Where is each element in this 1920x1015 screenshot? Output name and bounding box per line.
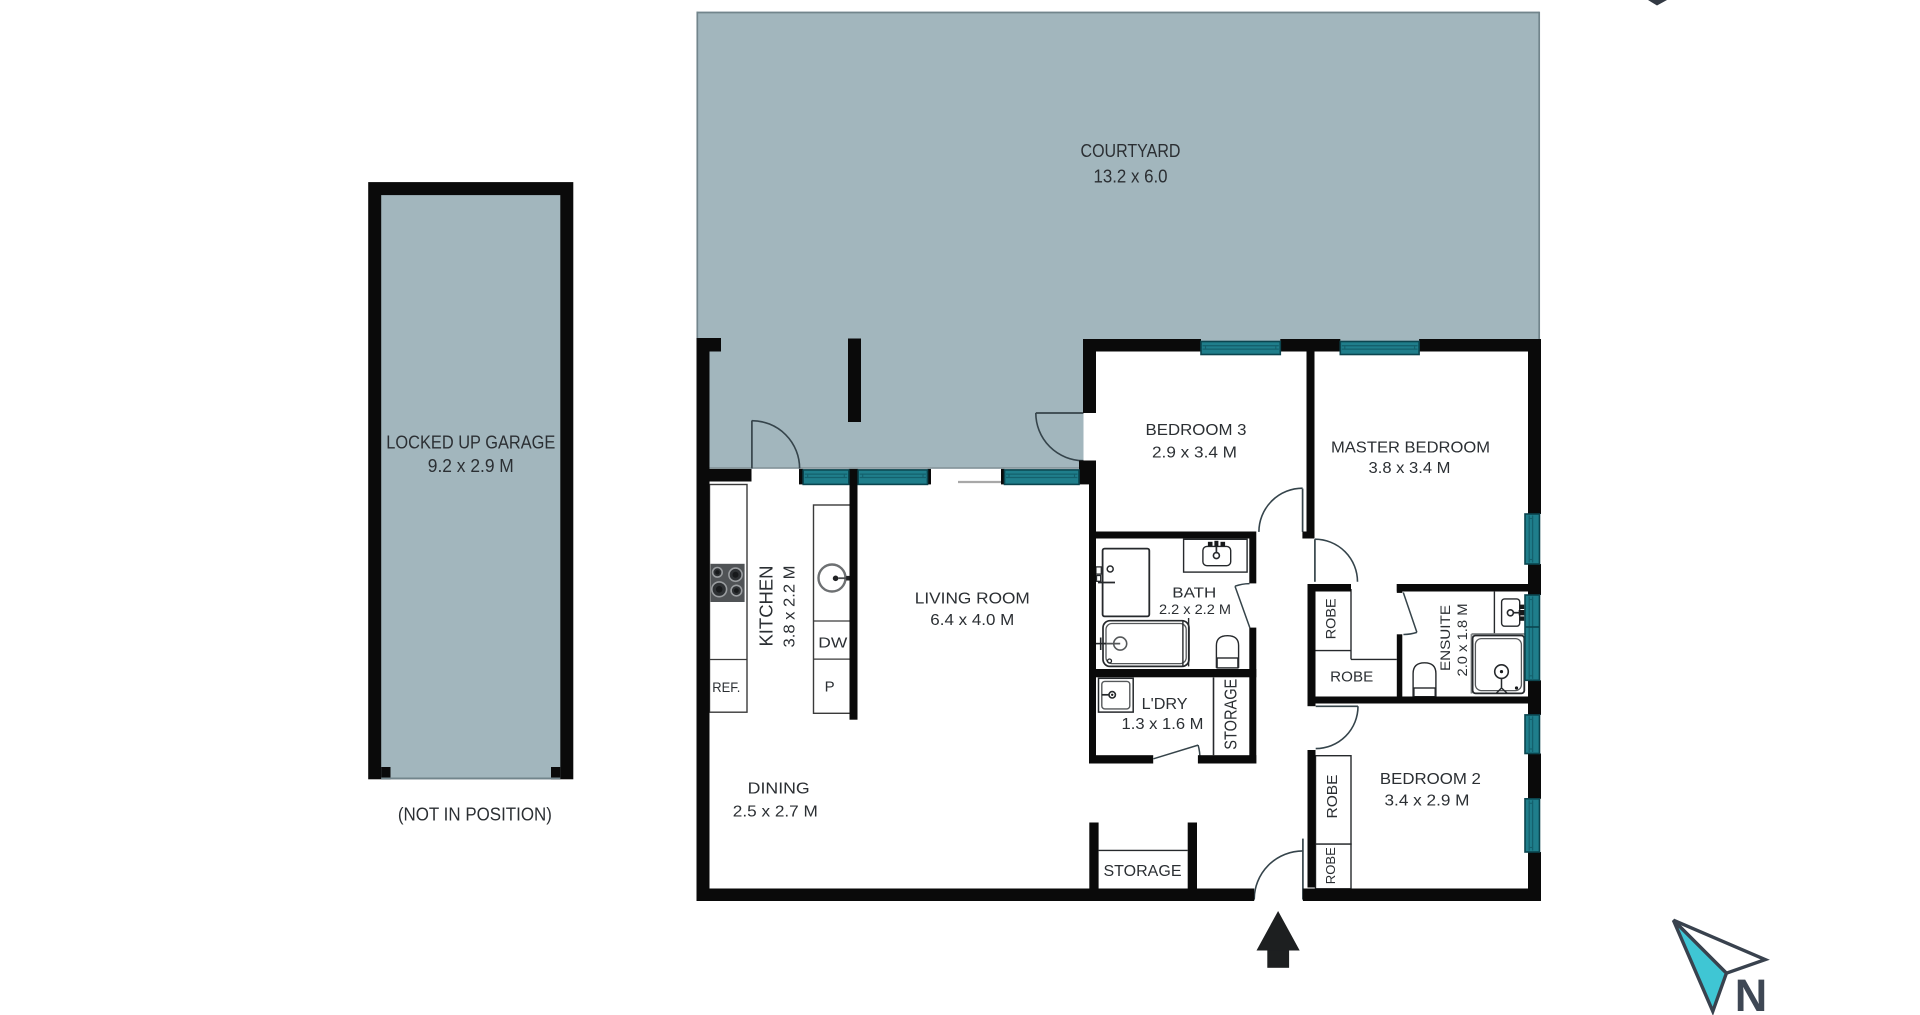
svg-text:L'DRY: L'DRY xyxy=(1142,696,1188,713)
svg-text:BEDROOM 2: BEDROOM 2 xyxy=(1380,771,1481,788)
svg-text:STORAGE: STORAGE xyxy=(1221,679,1241,750)
svg-text:LOCKED UP GARAGE: LOCKED UP GARAGE xyxy=(386,433,555,453)
svg-text:1.3 x 1.6 M: 1.3 x 1.6 M xyxy=(1122,716,1204,733)
svg-text:MASTER BEDROOM: MASTER BEDROOM xyxy=(1331,440,1490,457)
svg-text:N: N xyxy=(1735,970,1768,1015)
svg-text:3.8 x 3.4 M: 3.8 x 3.4 M xyxy=(1369,460,1451,477)
svg-text:DINING: DINING xyxy=(748,780,810,797)
svg-text:ROBE: ROBE xyxy=(1325,774,1341,818)
svg-text:ROBE: ROBE xyxy=(1330,669,1373,685)
svg-text:ROBE: ROBE xyxy=(1324,847,1338,884)
svg-text:LIVING ROOM: LIVING ROOM xyxy=(915,591,1030,608)
svg-text:STORAGE: STORAGE xyxy=(1104,863,1182,880)
svg-text:3.4 x 2.9 M: 3.4 x 2.9 M xyxy=(1385,793,1470,810)
svg-text:2.5 x 2.7 M: 2.5 x 2.7 M xyxy=(733,803,818,820)
svg-text:P: P xyxy=(825,678,835,695)
svg-text:2.2 x 2.2 M: 2.2 x 2.2 M xyxy=(1159,601,1231,617)
svg-text:2.9 x 3.4 M: 2.9 x 3.4 M xyxy=(1152,445,1237,462)
svg-text:3.8 x 2.2 M: 3.8 x 2.2 M xyxy=(781,566,798,648)
svg-text:9.2 x 2.9 M: 9.2 x 2.9 M xyxy=(428,456,514,476)
svg-text:REF.: REF. xyxy=(712,679,740,695)
svg-text:BEDROOM 3: BEDROOM 3 xyxy=(1146,422,1247,439)
svg-text:(NOT IN POSITION): (NOT IN POSITION) xyxy=(398,805,552,825)
svg-text:ENSUITE: ENSUITE xyxy=(1437,605,1453,671)
svg-text:13.2 x 6.0: 13.2 x 6.0 xyxy=(1094,167,1168,187)
svg-text:DW: DW xyxy=(818,635,848,652)
svg-text:COURTYARD: COURTYARD xyxy=(1081,140,1181,161)
svg-text:6.4 x 4.0 M: 6.4 x 4.0 M xyxy=(930,612,1014,629)
svg-text:BATH: BATH xyxy=(1172,585,1216,602)
svg-text:ROBE: ROBE xyxy=(1322,598,1338,639)
svg-text:KITCHEN: KITCHEN xyxy=(757,566,777,647)
svg-text:2.0 x 1.8 M: 2.0 x 1.8 M xyxy=(1455,604,1470,677)
